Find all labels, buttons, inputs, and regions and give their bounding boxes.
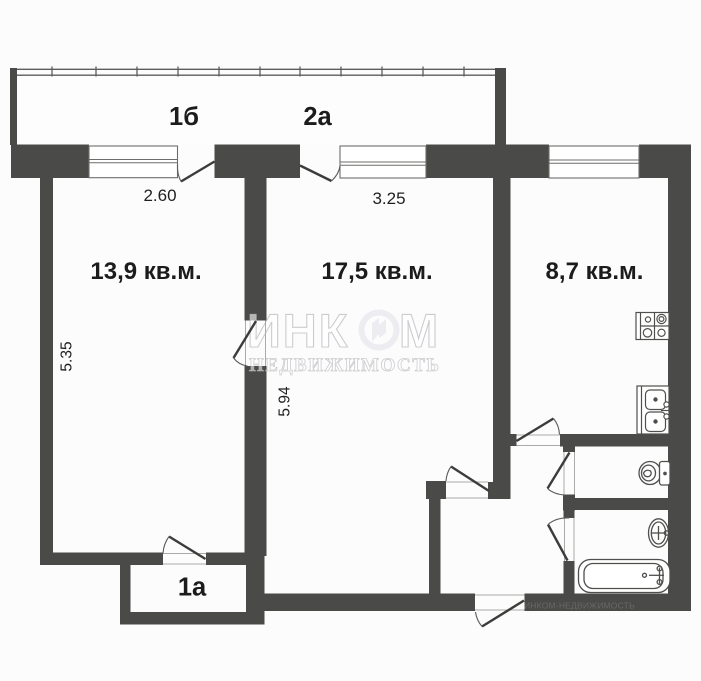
- svg-text:3.25: 3.25: [372, 189, 405, 208]
- svg-text:2а: 2а: [303, 103, 332, 131]
- svg-text:1а: 1а: [178, 574, 207, 602]
- svg-text:8,7 кв.м.: 8,7 кв.м.: [546, 258, 644, 285]
- svg-text:13,9 кв.м.: 13,9 кв.м.: [90, 258, 201, 285]
- svg-text:М: М: [399, 304, 438, 357]
- svg-text:5.94: 5.94: [277, 386, 294, 417]
- svg-text:17,5 кв.м.: 17,5 кв.м.: [321, 258, 432, 285]
- svg-text:1б: 1б: [169, 103, 199, 131]
- svg-text:2.60: 2.60: [143, 186, 176, 205]
- svg-text:ИНК: ИНК: [247, 304, 349, 357]
- svg-text:НЕДВИЖИМОСТЬ: НЕДВИЖИМОСТЬ: [249, 355, 440, 376]
- svg-text:ИНКОМ-НЕДВИЖИМОСТЬ: ИНКОМ-НЕДВИЖИМОСТЬ: [524, 601, 635, 611]
- svg-text:5.35: 5.35: [59, 341, 76, 371]
